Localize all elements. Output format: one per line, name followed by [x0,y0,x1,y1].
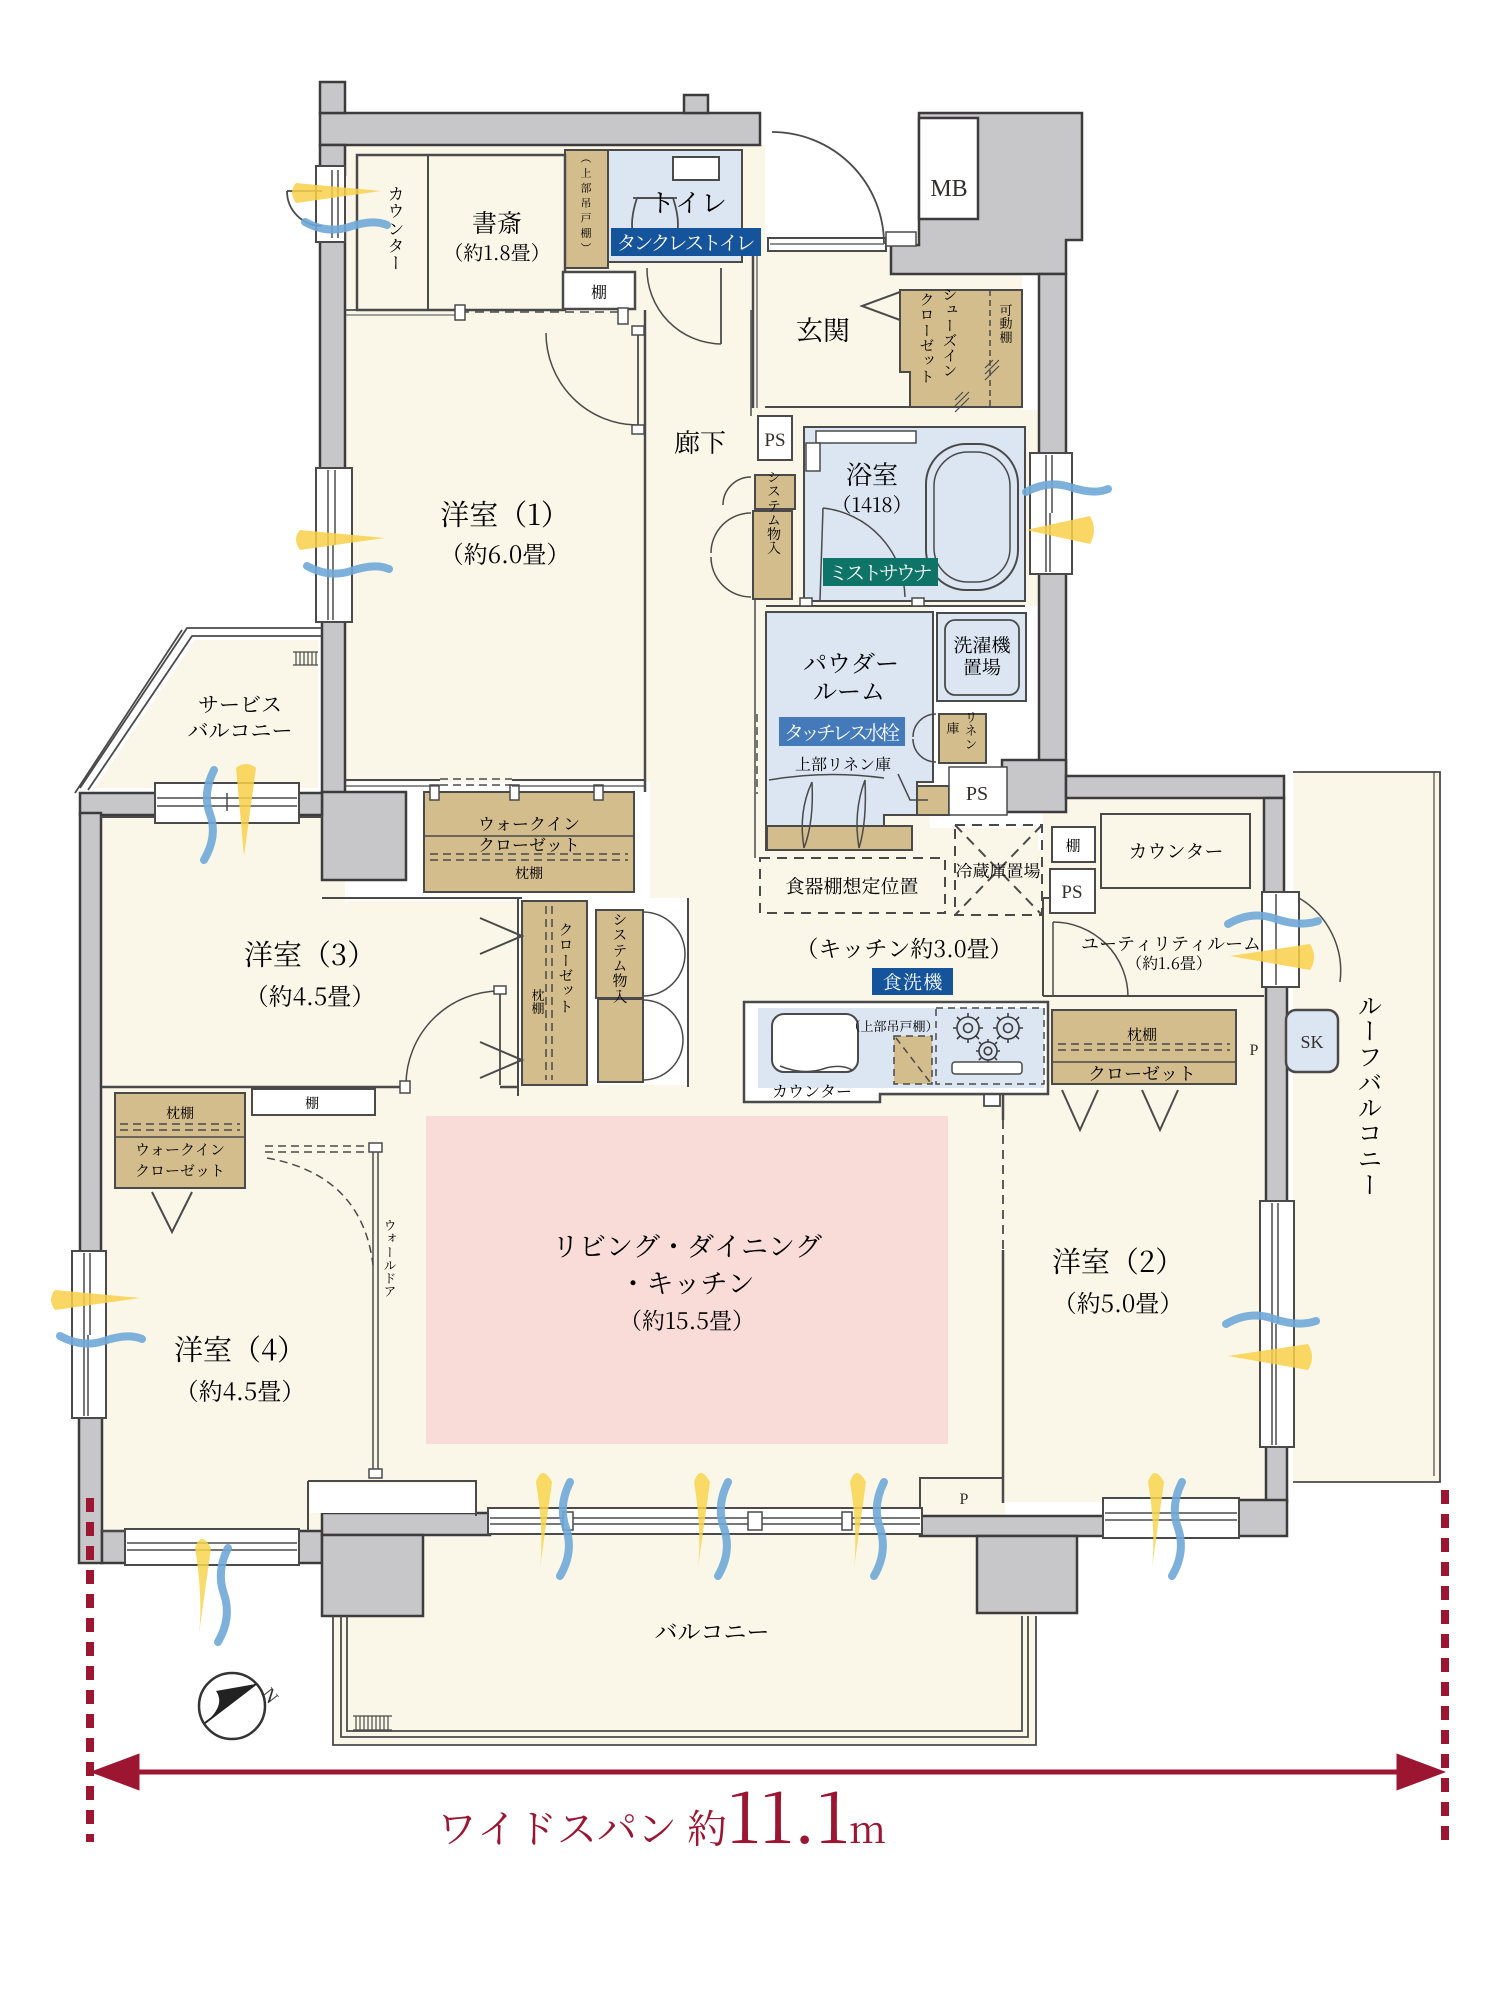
svg-text:PS: PS [764,430,785,451]
svg-text:P: P [1250,1042,1259,1059]
svg-text:PS: PS [1061,882,1082,903]
svg-text:SK: SK [1300,1032,1323,1052]
svg-text:MB: MB [930,176,967,202]
svg-text:P: P [960,1491,969,1508]
svg-text:PS: PS [966,783,988,805]
